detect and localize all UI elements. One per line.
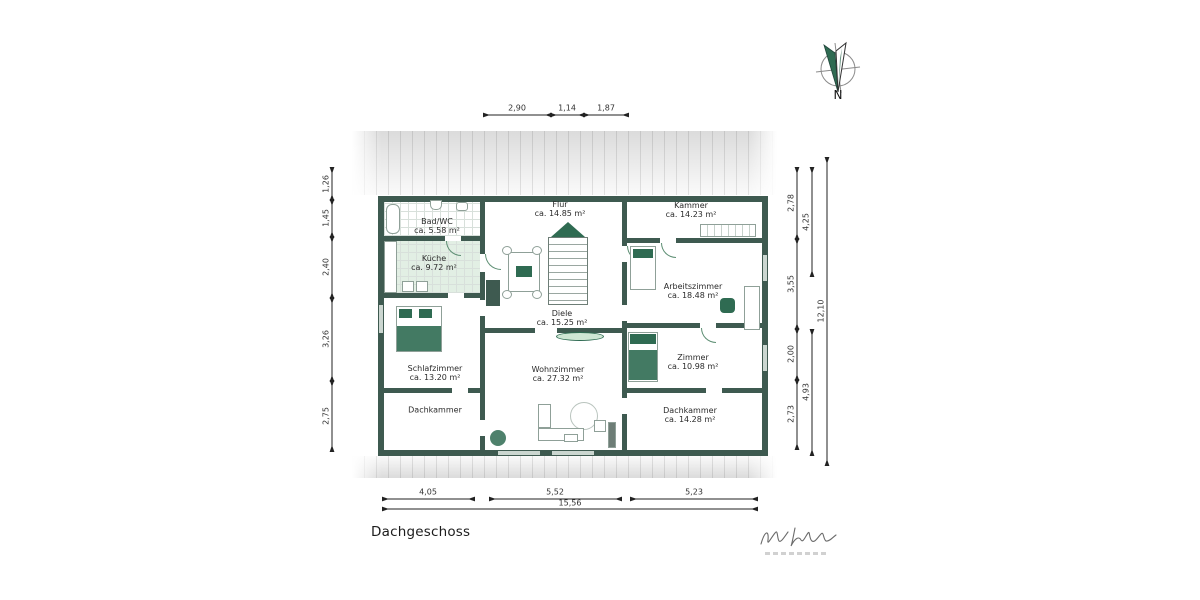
signature-caption bbox=[765, 552, 827, 555]
dim-right-total: 12,10 bbox=[817, 300, 826, 323]
dim-top-1: 2,90 bbox=[508, 104, 526, 113]
dim-left-1: 1,26 bbox=[322, 175, 331, 193]
dim-top-3: 1,87 bbox=[597, 104, 615, 113]
dim-bottom-2: 5,52 bbox=[546, 488, 564, 497]
dim-left-2: 1,45 bbox=[322, 209, 331, 227]
dim-right-inner-2: 3,55 bbox=[787, 275, 796, 293]
dim-left-5: 2,75 bbox=[322, 407, 331, 425]
plan-title: Dachgeschoss bbox=[371, 524, 470, 540]
dim-bottom-3: 5,23 bbox=[685, 488, 703, 497]
floor-plan-sheet: Bad/WC ca. 5.58 m² Küche ca. 9.72 m² Flu… bbox=[0, 0, 1200, 600]
dimension-lines bbox=[0, 0, 1200, 600]
compass-icon bbox=[812, 38, 864, 94]
dim-right-middle-2: 4,93 bbox=[802, 383, 811, 401]
north-label: N bbox=[834, 88, 843, 102]
dim-right-inner-1: 2,78 bbox=[787, 194, 796, 212]
signature bbox=[755, 524, 850, 550]
dim-bottom-total: 15,56 bbox=[559, 499, 582, 508]
dim-right-inner-4: 2,73 bbox=[787, 405, 796, 423]
dim-left-4: 3,26 bbox=[322, 330, 331, 348]
dim-top-2: 1,14 bbox=[558, 104, 576, 113]
dim-bottom-1: 4,05 bbox=[419, 488, 437, 497]
dim-right-inner-3: 2,00 bbox=[787, 345, 796, 363]
dim-right-middle-1: 4,25 bbox=[802, 213, 811, 231]
dim-left-3: 2,40 bbox=[322, 258, 331, 276]
